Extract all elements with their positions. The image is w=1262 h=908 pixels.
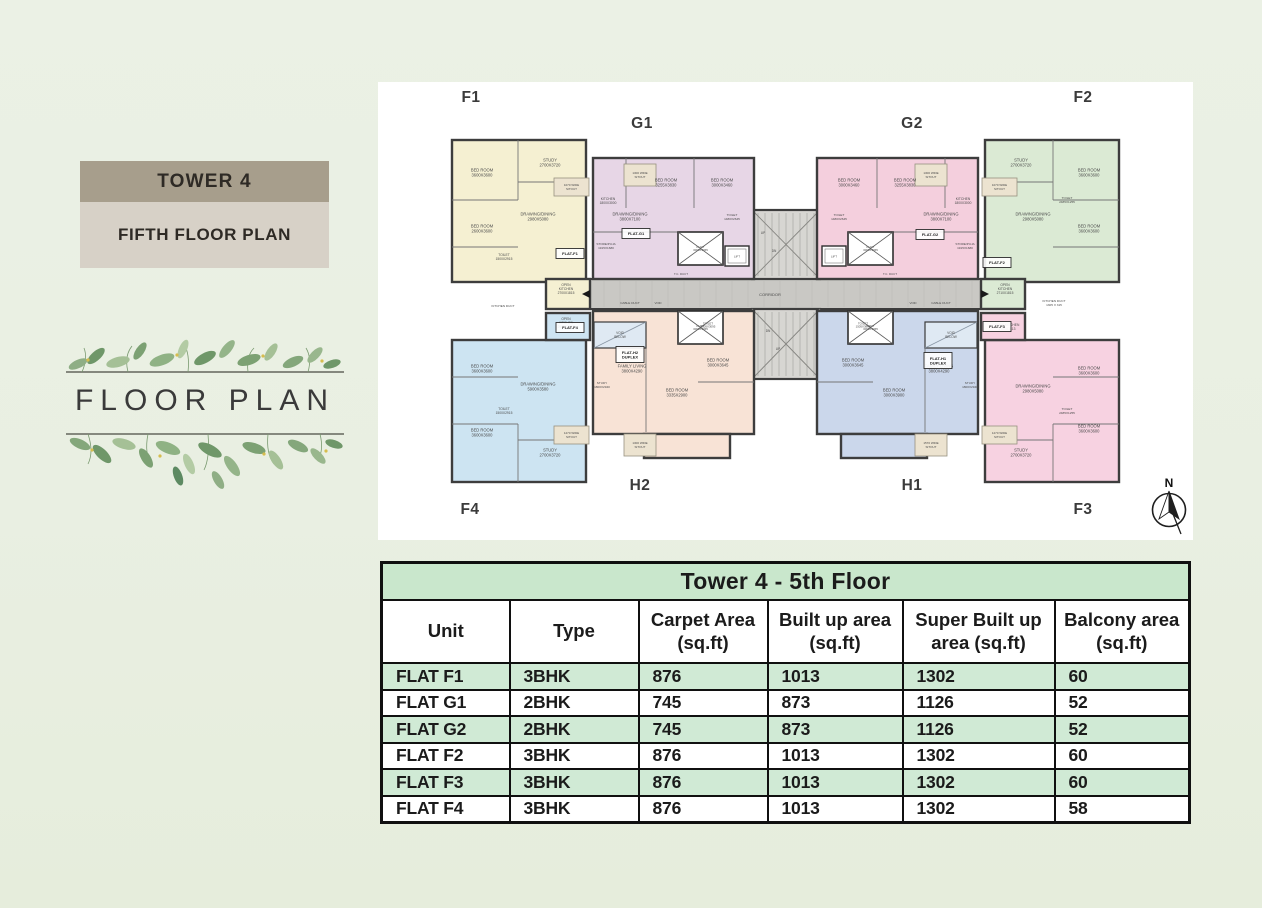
emblem-title: FLOOR PLAN: [58, 384, 352, 418]
room-label: KITCHEN1800X3000: [600, 197, 617, 205]
table-cell: 873: [768, 690, 903, 717]
table-cell: 60: [1055, 663, 1190, 690]
table-cell: 58: [1055, 796, 1190, 823]
table-title-row: Tower 4 - 5th Floor: [382, 563, 1190, 601]
sitout-label: 1570 WIDESITOUT: [923, 441, 938, 449]
room-label: VOID: [654, 301, 661, 305]
table-title: Tower 4 - 5th Floor: [382, 563, 1190, 601]
room-label: BED ROOM3255X3830: [894, 178, 917, 188]
room-label: T.C. DUCT: [674, 272, 688, 276]
room-label: BED ROOM3000X3645: [842, 358, 865, 368]
room-label: BED ROOM3000X3460: [711, 178, 734, 188]
flat-badge-label: FLAT-G2: [922, 232, 939, 237]
flat-badge-label: FLAT-F3: [989, 324, 1005, 329]
lift-label: LIFT: [734, 254, 740, 258]
table-cell: 1126: [903, 716, 1055, 743]
table-cell: 2BHK: [510, 716, 639, 743]
floor-plan-emblem: FLOOR PLAN: [58, 320, 352, 506]
floor-subtitle-bar: FIFTH FLOOR PLAN: [80, 202, 329, 268]
greenery-top-decoration: [58, 320, 352, 380]
brochure-page: { "sidebar": { "tower_label": "TOWER 4",…: [0, 0, 1262, 908]
area-table: Tower 4 - 5th Floor Unit Type Carpet Are…: [380, 561, 1191, 824]
room-label: BED ROOM3000X3900: [883, 388, 906, 398]
tower-title-bar: TOWER 4: [80, 161, 329, 202]
plan-unit-H1: [841, 434, 927, 458]
sitout-label: 1070 WIDESITOUT: [992, 183, 1007, 191]
table-row: FLAT F23BHK8761013130260: [382, 743, 1190, 770]
room-label: BED ROOM3600X3600: [471, 168, 494, 178]
room-label: DN: [766, 329, 771, 333]
room-label: UP: [761, 231, 765, 235]
table-row: FLAT F43BHK8761013130258: [382, 796, 1190, 823]
sitout-label: 1270 WIDESITOUT: [564, 431, 579, 439]
room-label: KITCHEN DUCT: [491, 304, 514, 308]
col-header-type: Type: [510, 600, 639, 663]
unit-label-F3: F3: [1073, 501, 1092, 518]
sitout-label: 1300 WIDESITOUT: [632, 441, 647, 449]
table-cell: 876: [639, 743, 768, 770]
table-cell: 60: [1055, 769, 1190, 796]
table-cell: 1013: [768, 743, 903, 770]
flat-badge-label: FLAT-H1DUPLEX: [930, 356, 947, 366]
unit-label-G2: G2: [901, 115, 923, 132]
plan-unit-F4: [452, 340, 586, 482]
table-cell: 1302: [903, 663, 1055, 690]
room-label: STORE/PUJA1915X1680: [955, 242, 975, 250]
table-row: FLAT F33BHK8761013130260: [382, 769, 1190, 796]
flat-badge-label: FLAT-F4: [562, 325, 578, 330]
table-cell: 60: [1055, 743, 1190, 770]
room-label: VOID: [909, 301, 916, 305]
compass-north-letter: N: [1165, 476, 1174, 490]
room-label: BED ROOM3600X3600: [1078, 168, 1101, 178]
table-cell: FLAT F4: [382, 796, 510, 823]
table-row: FLAT F13BHK8761013130260: [382, 663, 1190, 690]
room-label: FAMILY LIVING3800X4290: [618, 364, 647, 374]
room-label: BED ROOM3255X3830: [655, 178, 678, 188]
table-cell: 745: [639, 716, 768, 743]
table-cell: 1013: [768, 796, 903, 823]
table-cell: 2BHK: [510, 690, 639, 717]
room-label: BED ROOM3600X3600: [471, 428, 494, 438]
plan-unit-F3: [985, 340, 1119, 482]
table-cell: 52: [1055, 690, 1190, 717]
table-cell: 876: [639, 796, 768, 823]
table-cell: 3BHK: [510, 796, 639, 823]
table-cell: 1302: [903, 796, 1055, 823]
unit-label-F4: F4: [460, 501, 479, 518]
flat-badge-label: FLAT-G1: [628, 231, 645, 236]
room-label: BED ROOM3600X3600: [471, 364, 494, 374]
room-label: KITCHEN1800X3000: [955, 197, 972, 205]
table-cell: 3BHK: [510, 663, 639, 690]
room-label: BED ROOM3600X3600: [1078, 366, 1101, 376]
floor-plan-canvas: DUCT3000X3065DUCT3000X3065DUCT3000X3065D…: [378, 82, 1193, 540]
flat-badge-label: FLAT-F1: [562, 251, 578, 256]
table-cell: FLAT G1: [382, 690, 510, 717]
table-cell: 1013: [768, 769, 903, 796]
room-label: UP: [776, 347, 780, 351]
flat-badge-label: FLAT-H2DUPLEX: [622, 350, 639, 360]
room-label: DN: [772, 249, 777, 253]
room-label: CABLE DUCT: [620, 301, 640, 305]
room-label: BED ROOM3335X2900: [666, 388, 689, 398]
col-header-super-builtup-area: Super Built up area (sq.ft): [903, 600, 1055, 663]
table-cell: FLAT G2: [382, 716, 510, 743]
unit-label-H2: H2: [630, 477, 651, 494]
room-label: CORRIDOR: [759, 292, 781, 297]
plan-unit-H2: [644, 434, 730, 458]
table-cell: 873: [768, 716, 903, 743]
sitout-label: 1300 WIDESITOUT: [923, 171, 938, 179]
col-header-unit: Unit: [382, 600, 510, 663]
table-cell: 52: [1055, 716, 1190, 743]
room-label: BED ROOM3000X3460: [838, 178, 861, 188]
plan-unit-F1: [452, 140, 586, 282]
table-header-row: Unit Type Carpet Area (sq.ft) Built up a…: [382, 600, 1190, 663]
table-cell: 1013: [768, 663, 903, 690]
room-label: CABLE DUCT: [931, 301, 951, 305]
table-cell: 3BHK: [510, 769, 639, 796]
table-cell: 1302: [903, 769, 1055, 796]
table-cell: FLAT F2: [382, 743, 510, 770]
table-cell: 3BHK: [510, 743, 639, 770]
unit-label-F1: F1: [461, 89, 480, 106]
table-cell: 1126: [903, 690, 1055, 717]
table-row: FLAT G22BHK745873112652: [382, 716, 1190, 743]
sitout-label: 1300 WIDESITOUT: [632, 171, 647, 179]
room-label: BED ROOM2600X3600: [471, 224, 494, 234]
table-cell: 1302: [903, 743, 1055, 770]
floor-plan-drawing: DUCT3000X3065DUCT3000X3065DUCT3000X3065D…: [378, 82, 1193, 540]
table-cell: 876: [639, 663, 768, 690]
table-cell: FLAT F3: [382, 769, 510, 796]
col-header-carpet-area: Carpet Area (sq.ft): [639, 600, 768, 663]
table-cell: 876: [639, 769, 768, 796]
unit-label-G1: G1: [631, 115, 653, 132]
table-cell: FLAT F1: [382, 663, 510, 690]
unit-label-F2: F2: [1073, 89, 1092, 106]
col-header-builtup-area: Built up area (sq.ft): [768, 600, 903, 663]
greenery-bottom-decoration: [58, 424, 352, 506]
sitout-label: 1070 WIDESITOUT: [564, 183, 579, 191]
flat-badge-label: FLAT-F2: [989, 260, 1005, 265]
table-cell: 745: [639, 690, 768, 717]
room-label: STORE/PUJA1915X1680: [596, 242, 616, 250]
room-label: T.C. DUCT: [883, 272, 897, 276]
room-label: BED ROOM3600X3600: [1078, 224, 1101, 234]
lift-label: LIFT: [831, 254, 837, 258]
room-label: BED ROOM3000X3645: [707, 358, 730, 368]
table-row: FLAT G12BHK745873112652: [382, 690, 1190, 717]
col-header-balcony-area: Balcony area (sq.ft): [1055, 600, 1190, 663]
unit-label-H1: H1: [902, 477, 923, 494]
room-label: BED ROOM3600X3600: [1078, 424, 1101, 434]
corridor: [590, 279, 981, 309]
sitout-label: 1270 WIDESITOUT: [992, 431, 1007, 439]
